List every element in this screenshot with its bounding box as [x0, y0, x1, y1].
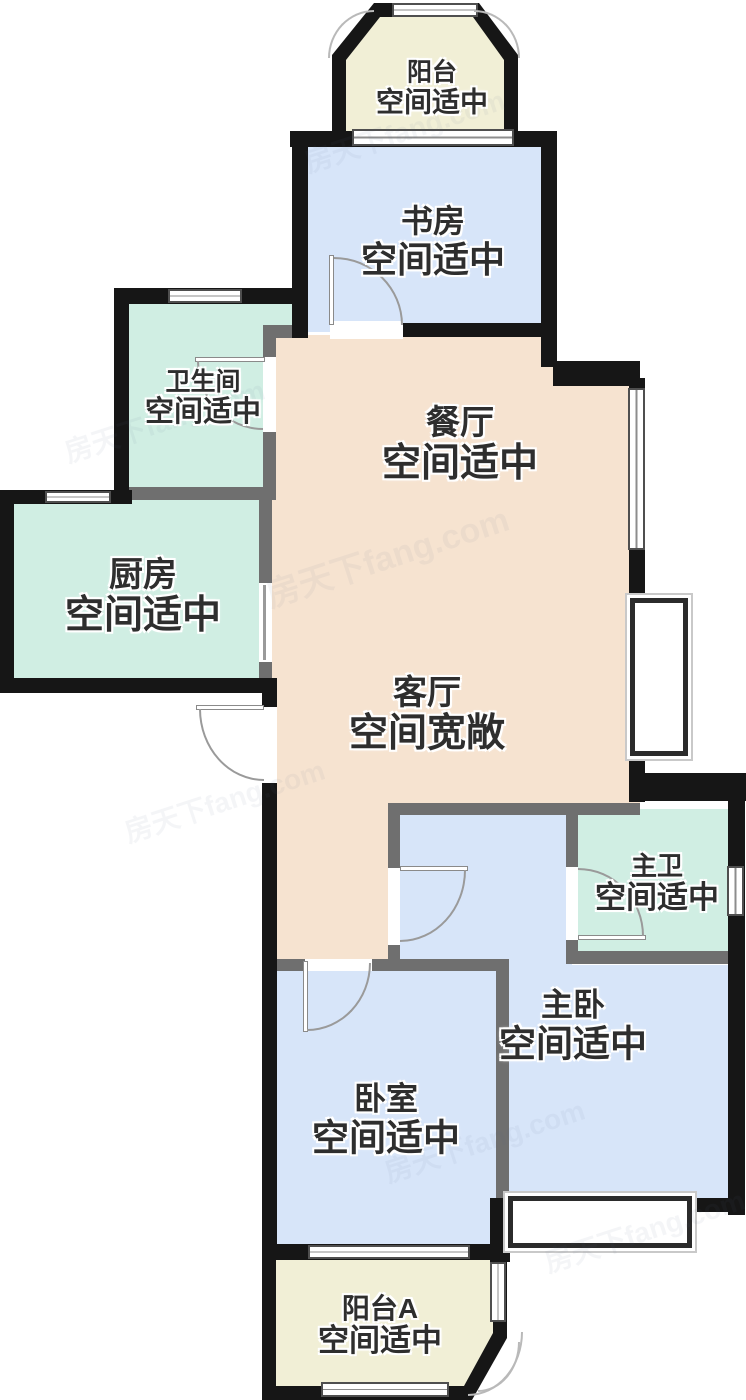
window [392, 3, 478, 17]
bay-window [630, 598, 688, 756]
entrance-door-opening [262, 707, 277, 783]
room-label-dining: 餐厅 空间适中 [382, 404, 538, 486]
room-name: 主卫 [595, 852, 719, 881]
room-desc: 空间适中 [595, 881, 719, 916]
window [45, 491, 111, 503]
wall-exterior [0, 490, 14, 693]
window [352, 129, 514, 146]
window [321, 1382, 449, 1397]
wall-interior [262, 959, 508, 971]
wall-exterior [292, 131, 308, 338]
wall-exterior [686, 1198, 744, 1212]
sliding-door [263, 585, 266, 660]
window [168, 289, 242, 303]
room-desc: 空间适中 [318, 1324, 442, 1359]
room-label-study: 书房 空间适中 [361, 204, 505, 280]
wall-interior [388, 803, 640, 815]
room-desc: 空间宽敞 [349, 712, 505, 756]
room-name: 阳台 [376, 58, 488, 86]
room-desc: 空间适中 [65, 594, 221, 638]
corner-window-arc [474, 10, 520, 58]
room-desc: 空间适中 [312, 1117, 460, 1158]
window [628, 388, 645, 550]
room-label-balcony-a: 阳台A 空间适中 [318, 1293, 442, 1359]
room-label-bedroom: 卧室 空间适中 [312, 1081, 460, 1158]
room-label-master-bedroom: 主卧 空间适中 [499, 987, 647, 1064]
room-desc: 空间适中 [382, 442, 538, 486]
door-opening [566, 867, 578, 940]
room-label-bathroom: 卫生间 空间适中 [145, 368, 261, 428]
bay-window [508, 1196, 692, 1248]
window [308, 1245, 470, 1259]
wall-exterior [728, 795, 745, 1215]
wall-exterior [400, 323, 557, 337]
room-label-kitchen: 厨房 空间适中 [65, 556, 221, 638]
floor-plan: 房天下fang.com 房天下fang.com 房天下fang.com 房天下f… [0, 0, 746, 1400]
room-label-master-bath: 主卫 空间适中 [595, 852, 719, 916]
room-name: 卫生间 [145, 368, 261, 396]
room-desc: 空间适中 [361, 240, 505, 280]
entrance-door-arc [199, 709, 264, 781]
window [727, 866, 744, 916]
wall-exterior [114, 288, 129, 500]
corner-window-arc [478, 1342, 520, 1392]
corner-window-arc [328, 10, 374, 58]
room-name: 主卧 [499, 987, 647, 1023]
room-desc: 空间适中 [376, 86, 488, 117]
wall-exterior [0, 678, 277, 693]
room-desc: 空间适中 [499, 1023, 647, 1064]
door-opening [388, 868, 400, 945]
room-name: 厨房 [65, 556, 221, 594]
wall-interior [566, 951, 736, 964]
room-name: 卧室 [312, 1081, 460, 1117]
room-name: 阳台A [318, 1293, 442, 1324]
window [490, 1262, 506, 1322]
room-name: 客厅 [349, 674, 505, 712]
room-name: 书房 [361, 204, 505, 240]
door-opening [263, 357, 276, 432]
room-name: 餐厅 [382, 404, 538, 442]
room-label-balcony-top: 阳台 空间适中 [376, 58, 488, 117]
wall-interior [124, 487, 276, 500]
room-label-living: 客厅 空间宽敞 [349, 674, 505, 756]
wall-exterior [553, 361, 640, 386]
room-desc: 空间适中 [145, 396, 261, 428]
